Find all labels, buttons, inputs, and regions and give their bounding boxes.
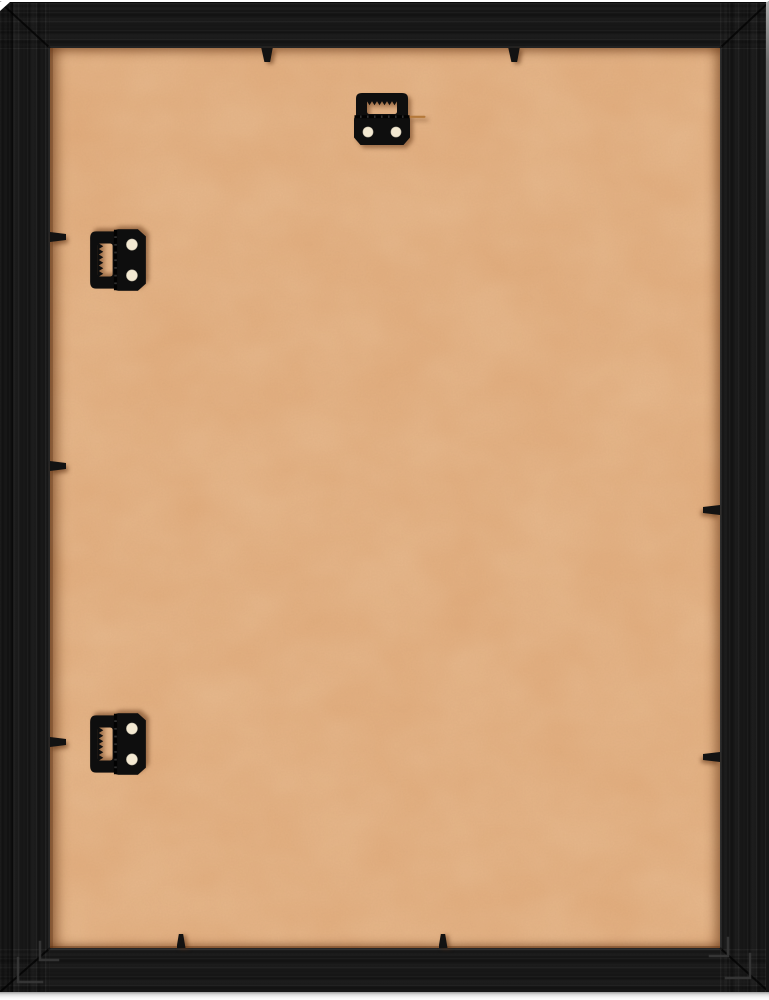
frame-opening-lip	[48, 46, 722, 950]
flex-tab-right	[703, 752, 720, 762]
white-backdrop-strip	[0, 992, 769, 1000]
screw-hole	[126, 269, 138, 281]
hanger-plate	[114, 229, 146, 291]
screw-hole	[391, 127, 402, 138]
sawtooth-hanger-graphic	[88, 227, 148, 293]
hanger-plate	[354, 115, 410, 145]
hanger-loop	[356, 93, 408, 118]
flex-tab-metal	[50, 737, 66, 747]
flex-tab-metal	[261, 48, 274, 62]
flex-tab-right	[703, 505, 720, 515]
screw-hole	[126, 723, 138, 735]
flex-tab-metal	[703, 505, 720, 515]
flex-tab-metal	[50, 232, 66, 242]
flex-tab-metal	[508, 48, 521, 62]
flex-tab-metal	[177, 934, 186, 948]
flex-tab-left	[50, 232, 66, 242]
sawtooth-teeth	[367, 100, 397, 105]
sawtooth-hanger-graphic	[352, 91, 426, 147]
screw-hole	[126, 239, 138, 251]
flex-tab-metal	[439, 934, 448, 948]
screw-hole	[363, 127, 374, 138]
sawtooth-hanger-graphic	[88, 711, 148, 777]
sawtooth-hanger-upper-left	[88, 227, 148, 293]
hanger-loop	[90, 231, 117, 288]
flex-tab-top	[508, 48, 521, 62]
hanger-loop	[90, 715, 117, 772]
flex-tab-bottom	[439, 934, 448, 948]
picture-frame-back-photo	[0, 0, 769, 1000]
flex-tab-top	[261, 48, 274, 62]
hanger-spur	[409, 116, 426, 118]
sawtooth-hanger-top	[352, 91, 426, 147]
screw-hole	[126, 753, 138, 765]
sawtooth-hanger-lower-left	[88, 711, 148, 777]
sawtooth-teeth	[98, 244, 104, 277]
sawtooth-teeth	[98, 728, 104, 761]
hanger-plate	[114, 713, 146, 775]
flex-tab-left	[50, 737, 66, 747]
flex-tab-bottom	[177, 934, 186, 948]
flex-tab-left	[50, 461, 66, 471]
flex-tab-metal	[703, 752, 720, 762]
flex-tab-metal	[50, 461, 66, 471]
